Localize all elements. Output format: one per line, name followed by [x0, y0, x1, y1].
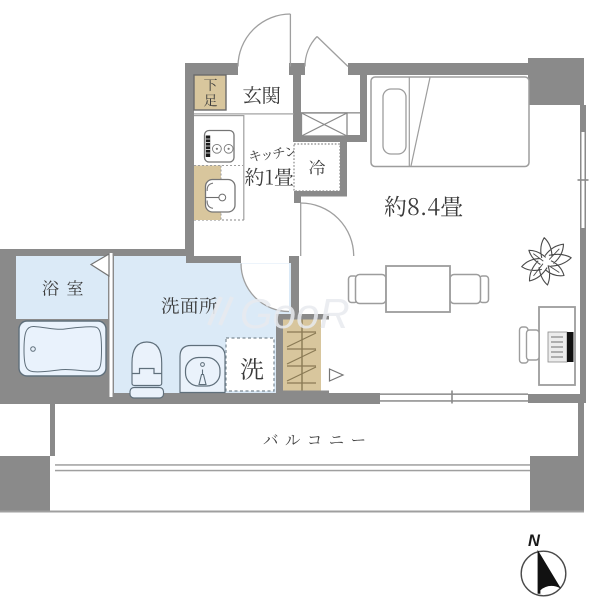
svg-text:GooR: GooR	[240, 290, 350, 337]
svg-text:N: N	[528, 532, 541, 550]
